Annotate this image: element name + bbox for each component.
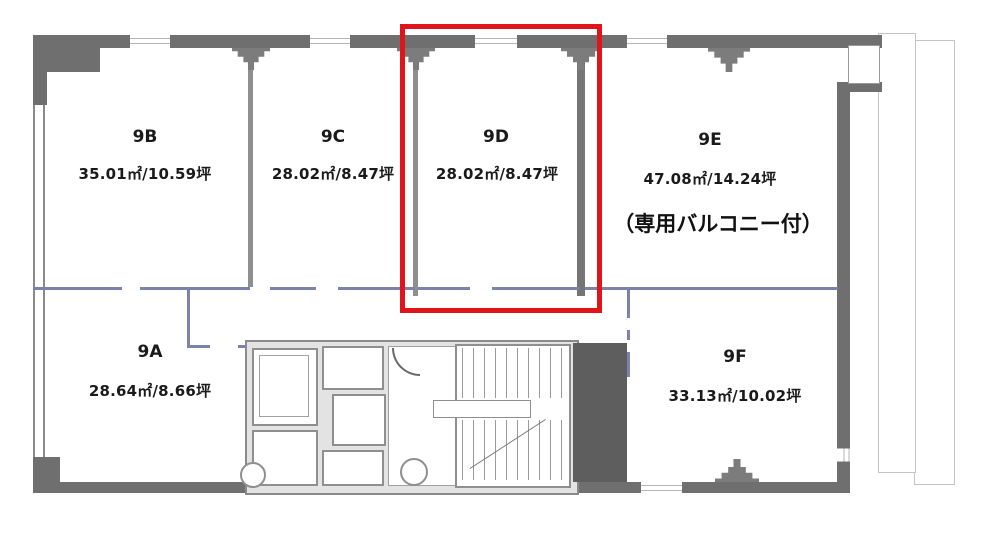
room-label-9f: 9F <box>640 347 830 367</box>
exterior-wall-right <box>837 82 850 493</box>
room-note-9e-balcony: （専用バルコニー付） <box>582 208 854 238</box>
utility-room <box>322 450 384 486</box>
room-label-9e: 9E <box>615 130 805 150</box>
room-label-9a: 9A <box>60 342 240 362</box>
wall-9f-west <box>627 330 630 340</box>
window <box>310 35 350 48</box>
window <box>627 35 667 48</box>
room-area-9a: 28.64㎡/8.66坪 <box>40 380 260 401</box>
paper-sheet-edge <box>878 33 916 473</box>
window <box>641 482 682 493</box>
highlight-box-9d <box>400 24 602 313</box>
room-area-9c: 28.02㎡/8.47坪 <box>248 163 418 184</box>
utility-room <box>332 394 386 446</box>
room-area-9b: 35.01㎡/10.59坪 <box>35 163 255 184</box>
window <box>130 35 170 48</box>
room-label-9c: 9C <box>258 127 408 147</box>
utility-room <box>322 346 384 390</box>
wall-9f-west <box>627 352 630 377</box>
corridor-wall <box>187 287 190 347</box>
pipe-shaft <box>400 458 428 486</box>
exterior-wall-bottom <box>682 482 845 493</box>
floor-plan: 9B 35.01㎡/10.59坪 9C 28.02㎡/8.47坪 9D 28.0… <box>0 0 996 533</box>
room-area-9e: 47.08㎡/14.24坪 <box>605 168 815 189</box>
balcony <box>848 45 880 84</box>
pillar-mark <box>232 48 270 70</box>
room-area-9f: 33.13㎡/10.02坪 <box>630 385 840 406</box>
exterior-wall-top <box>170 35 310 48</box>
shaft-block <box>573 343 627 482</box>
pillar-mark <box>708 48 750 72</box>
corridor-wall <box>140 287 250 290</box>
exterior-wall-bottom <box>575 482 641 493</box>
corridor-wall <box>585 287 838 290</box>
window <box>835 449 853 462</box>
exterior-wall-left <box>33 105 45 482</box>
pipe-shaft <box>240 462 266 488</box>
pillar-mark <box>715 459 759 482</box>
wall-9f-west <box>627 290 630 318</box>
corridor-wall <box>33 287 122 290</box>
elevator-car <box>259 355 309 417</box>
corridor-wall <box>270 287 316 290</box>
exterior-wall-bottom <box>33 482 247 493</box>
room-label-9b: 9B <box>60 127 230 147</box>
stair-treads <box>462 348 562 398</box>
corner-pillar <box>33 35 47 105</box>
stair-landing <box>433 400 531 418</box>
paper-sheet-edge <box>914 40 955 485</box>
stair-treads <box>462 420 562 480</box>
